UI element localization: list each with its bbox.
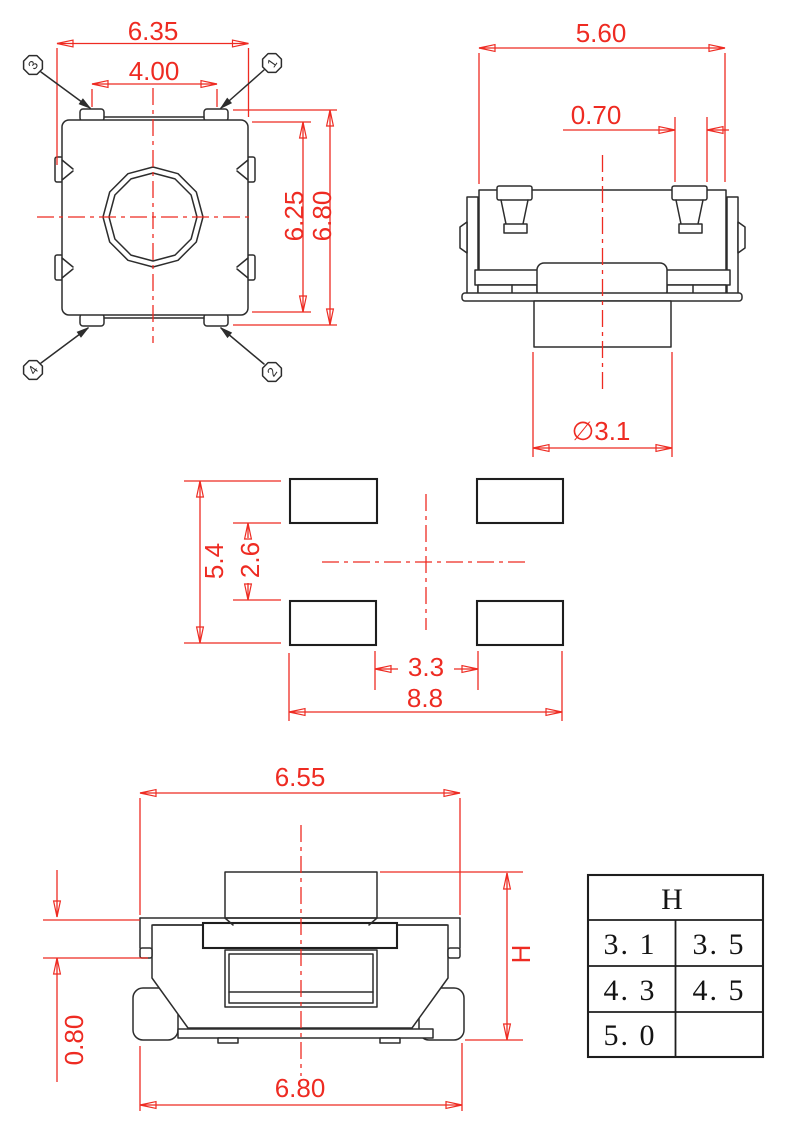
dim-label: 6.35	[128, 16, 179, 46]
terminal-tab	[218, 1038, 238, 1043]
table-cell: 3. 1	[604, 928, 657, 961]
dim-label: 6.55	[275, 762, 326, 792]
dim-label: 3.3	[408, 652, 444, 682]
corner-clip-foot	[448, 948, 460, 958]
terminal-tab	[80, 109, 104, 121]
height-table: H 3. 1 3. 5 4. 3 4. 5 5. 0	[588, 875, 763, 1057]
dim-label: 6.25	[279, 191, 309, 242]
pcb-pad	[477, 601, 563, 645]
table-cell: 3. 5	[693, 928, 746, 961]
cover-tab	[203, 923, 397, 948]
dim-label: ∅3.1	[572, 416, 631, 446]
terminal-tab	[672, 186, 707, 200]
table-cell: 4. 5	[693, 974, 746, 1007]
dim-label: 5.60	[576, 18, 627, 48]
table-cell: 4. 3	[604, 974, 657, 1007]
technical-drawing: 6.35 4.00 6.25 6.80 3 1	[0, 0, 790, 1138]
terminal-tab	[204, 109, 228, 121]
side-clip-hook	[460, 222, 467, 253]
terminal-tab	[80, 314, 104, 326]
dim-label: 4.00	[129, 56, 180, 86]
dim-label: H	[506, 945, 536, 964]
dim-label: 8.8	[407, 683, 443, 713]
pcb-pad	[477, 479, 563, 523]
dim-label: 0.80	[59, 1015, 89, 1066]
dim-label: 2.6	[235, 542, 265, 578]
dim-label: 6.80	[275, 1073, 326, 1103]
pcb-pad	[290, 479, 377, 523]
corner-clip-foot	[140, 948, 152, 958]
terminal-tab	[204, 314, 228, 326]
terminal-foot	[504, 224, 527, 233]
dim-label: 5.4	[199, 543, 229, 579]
pcb-pad	[290, 601, 376, 645]
terminal-tab	[497, 186, 532, 200]
base-strip	[178, 1029, 433, 1038]
terminal-foot	[679, 224, 702, 233]
dim-label: 0.70	[571, 100, 622, 130]
side-clip-hook	[738, 222, 745, 253]
table-cell: 5. 0	[604, 1019, 657, 1052]
dim-label: 6.80	[307, 191, 337, 242]
table-header: H	[661, 883, 685, 916]
terminal-tab	[380, 1038, 400, 1043]
